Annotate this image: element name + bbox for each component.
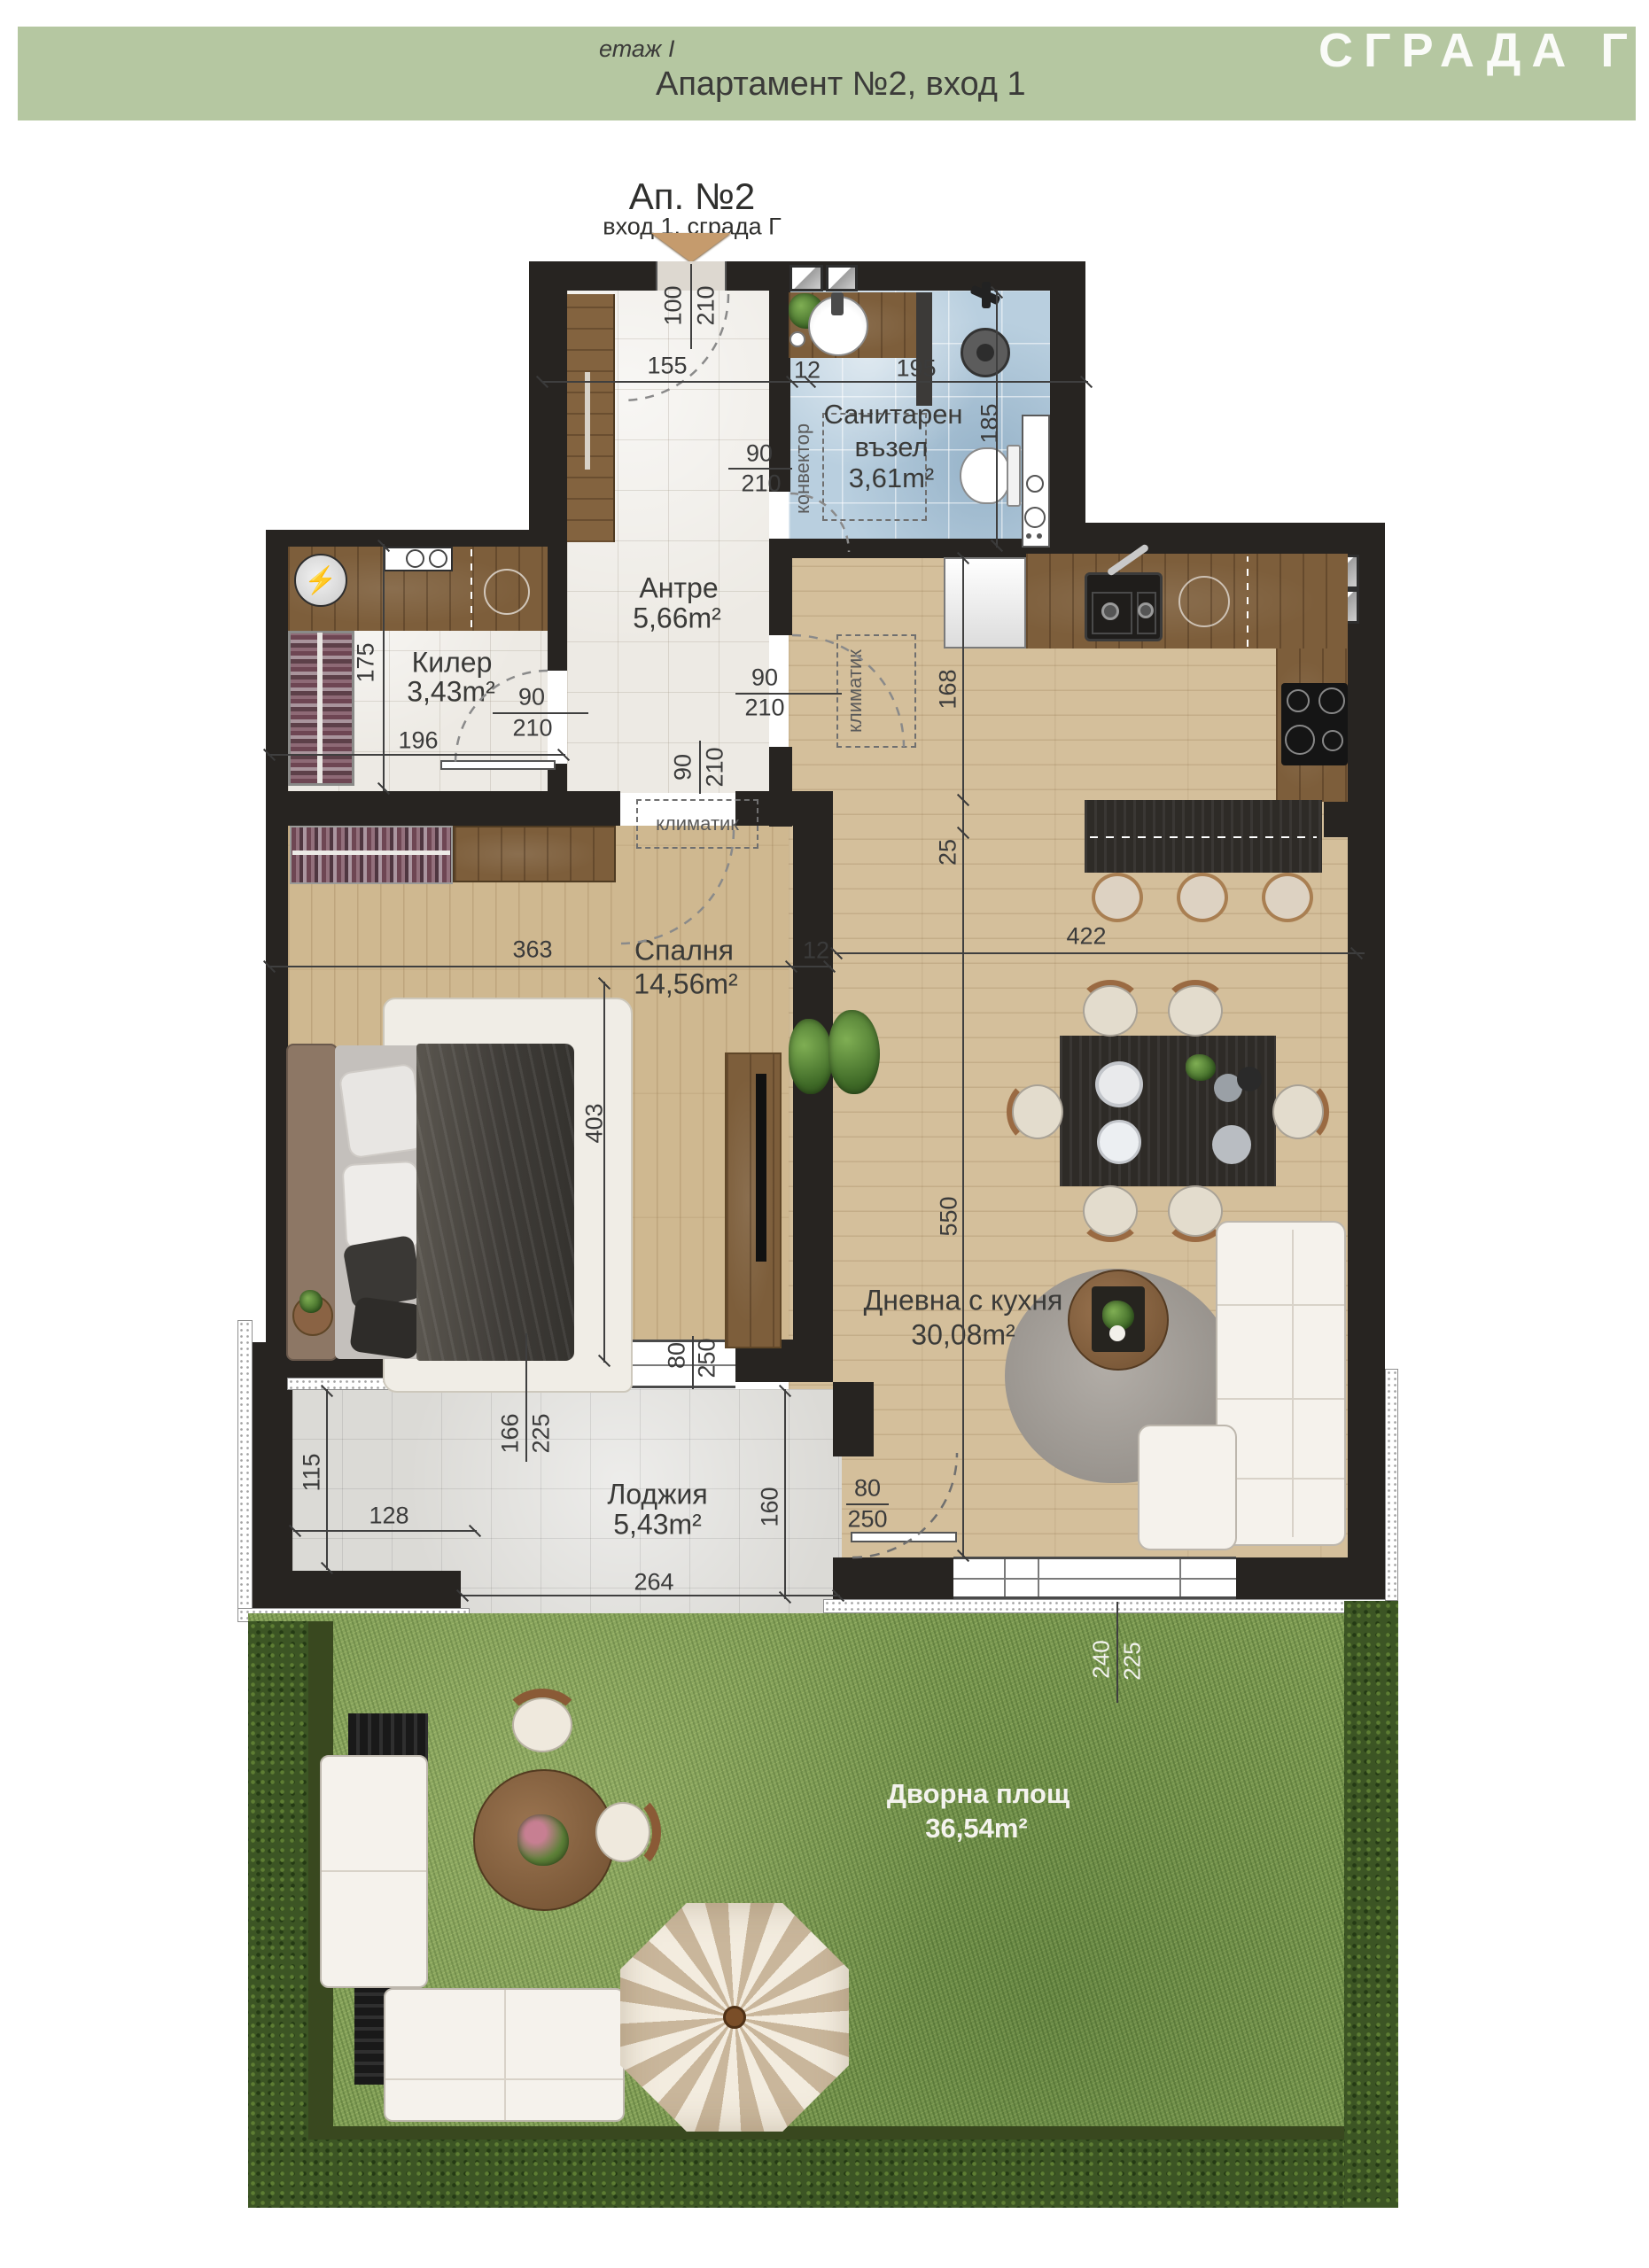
dining-chair-seat [1168, 985, 1223, 1037]
dim-label: 25 [935, 839, 962, 866]
sofa-cushion-line [1217, 1398, 1344, 1400]
burner-icon [1322, 730, 1343, 751]
bathroom-name: възел [855, 431, 929, 463]
ac-label: климатик [844, 649, 867, 733]
plant-icon [789, 1019, 833, 1094]
toilet [960, 447, 1011, 504]
entrance-arrow-icon [651, 233, 731, 262]
dim-label: 166 [497, 1413, 525, 1453]
storage-area: 3,43m² [407, 676, 495, 709]
dim-label: 155 [647, 353, 687, 380]
bathroom-area: 3,61m² [849, 462, 934, 494]
sofa-cushion-line [1217, 1304, 1344, 1306]
boiler-knob-icon [1026, 475, 1044, 493]
wall-segment [833, 1382, 874, 1456]
apartment-marker-title: Ап. №2 [629, 175, 756, 218]
dim-label: 225 [528, 1413, 556, 1453]
dining-chair-seat [1012, 1084, 1063, 1139]
wardrobe-rail [317, 633, 323, 783]
door-leaf [440, 760, 556, 770]
burner-icon [1318, 687, 1345, 714]
dining-chair-seat [1272, 1084, 1324, 1139]
wall-segment [1348, 523, 1385, 1599]
dimension-line [784, 1389, 786, 1599]
wall-segment [727, 261, 1085, 291]
bar-stool [1262, 873, 1313, 922]
dim-label: 210 [741, 470, 781, 498]
counter-circle-outline [1178, 576, 1230, 627]
bedroom-wardrobe-rail [292, 850, 450, 855]
wall-segment [548, 549, 567, 671]
dim-label: 264 [634, 1569, 673, 1596]
dim-label: 240 [1088, 1640, 1116, 1678]
wall-segment [793, 826, 833, 1382]
dim-label: 80 [664, 1342, 691, 1369]
dim-label: 210 [512, 715, 552, 742]
entry-name: Антре [639, 572, 718, 605]
insulation-hatch [237, 1320, 253, 1621]
hedge [1344, 1601, 1398, 2208]
dim-label: 225 [1119, 1642, 1147, 1680]
sofa-ottoman [1138, 1425, 1237, 1550]
bar-stool [1177, 873, 1228, 922]
burner-icon [1287, 689, 1310, 712]
dim-label: 128 [369, 1503, 408, 1530]
bathroom-window [826, 265, 858, 291]
hedge [248, 2140, 1398, 2208]
tv-screen [756, 1074, 766, 1262]
flower-bouquet-icon [517, 1814, 569, 1866]
wall-segment [1324, 796, 1350, 837]
dim-label: 185 [976, 403, 1004, 443]
insulation-hatch [1385, 1369, 1398, 1601]
plant-icon [299, 1290, 323, 1313]
window-mullion [1179, 1559, 1181, 1596]
washing-machine: ⚡ [294, 554, 347, 607]
counter-divider-line [471, 549, 472, 627]
shower-head-icon [982, 282, 991, 308]
wall-segment [529, 261, 567, 554]
dimension-line [268, 966, 831, 967]
dining-table [1060, 1036, 1276, 1186]
dim-label: 100 [660, 285, 688, 325]
dimension-line [293, 1530, 477, 1532]
shower-drain-icon [976, 344, 994, 361]
dim-label: 196 [398, 727, 438, 755]
dimension-line [962, 556, 964, 1557]
soap-cup-icon [789, 331, 805, 347]
outdoor-chair-seat [512, 1697, 572, 1752]
floor-plan-page: етаж I Апартамент №2, вход 1 СГРАДА Г Ап… [0, 0, 1649, 2268]
page-title: Апартамент №2, вход 1 [656, 66, 1026, 104]
dim-label: 90 [746, 440, 773, 468]
yard-name: Дворна площ [887, 1778, 1070, 1810]
bed-blanket [416, 1044, 574, 1361]
bedroom-wardrobe-clothes [290, 826, 453, 884]
wall-segment [1050, 261, 1085, 556]
wall-segment [833, 1557, 953, 1599]
wall-segment [1050, 523, 1385, 556]
wall-segment [266, 530, 288, 1382]
bed-pillow-dark [342, 1235, 423, 1310]
loggia-area: 5,43m² [613, 1509, 702, 1542]
dim-label: 250 [847, 1506, 887, 1534]
window-mullion [1038, 1559, 1039, 1596]
insulation-hatch [823, 1599, 1398, 1613]
dim-label: 12 [803, 937, 829, 965]
bathroom-window [789, 265, 823, 291]
dimension-line [603, 982, 605, 1363]
sink-drain-icon [1101, 602, 1119, 620]
plate [1095, 1061, 1143, 1107]
dim-label: 250 [694, 1338, 721, 1378]
dim-label: 195 [896, 355, 936, 383]
bar-dashed-line [1090, 836, 1317, 838]
wall-segment [1236, 1557, 1385, 1599]
counter-dashed-line [1247, 556, 1248, 647]
dining-chair-seat [1083, 985, 1138, 1037]
flower-icon [1109, 1325, 1125, 1341]
dim-label: 12 [794, 357, 821, 384]
sink-faucet-icon [831, 292, 844, 315]
window-frame-line [953, 1578, 1236, 1580]
bedroom-area: 14,56m² [634, 968, 737, 1001]
bathroom-name: Санитарен [823, 399, 962, 431]
utility-sink-bowl [429, 549, 447, 568]
dimension-line [326, 1389, 328, 1570]
outdoor-chair-seat [595, 1802, 650, 1862]
dim-label: 160 [757, 1487, 784, 1526]
bed-pillow [338, 1062, 426, 1159]
yard-area: 36,54m² [925, 1813, 1027, 1845]
sofa-cushion-line [504, 1990, 506, 2120]
boiler-knob-icon [1024, 507, 1046, 528]
boiler-dot-icon [1026, 533, 1031, 539]
plate [1212, 1125, 1251, 1164]
entry-wardrobe [567, 294, 615, 542]
door-leaf [851, 1532, 957, 1542]
bed-pillow [341, 1161, 422, 1251]
building-label: СГРАДА Г [1318, 23, 1638, 78]
outdoor-sofa-cushions [320, 1755, 428, 1988]
floor-label: етаж I [599, 35, 675, 63]
utility-sink-bowl [406, 549, 424, 568]
dim-label: 90 [518, 684, 545, 711]
living-yard-window [953, 1557, 1236, 1599]
dim-label: 210 [702, 747, 729, 787]
plate [1097, 1120, 1141, 1164]
bowl-dark [1237, 1067, 1262, 1091]
dim-label: 90 [670, 754, 697, 781]
wall-segment [266, 791, 620, 826]
sofa-back-line [1292, 1230, 1294, 1537]
umbrella-pole-icon [723, 2006, 746, 2029]
dim-label: 422 [1066, 923, 1106, 951]
window-mullion [1004, 1559, 1006, 1596]
fridge [944, 557, 1026, 649]
dim-label: 403 [581, 1103, 609, 1143]
dim-label: 115 [299, 1453, 326, 1491]
dim-label: 363 [512, 936, 552, 964]
dim-label: 80 [854, 1475, 881, 1503]
plant-icon [828, 1010, 880, 1094]
ac-label: климатик [656, 812, 739, 835]
storage-name: Килер [412, 647, 493, 680]
wall-segment [253, 1571, 461, 1608]
hedge [248, 1621, 308, 2208]
counter-circle-outline [484, 569, 530, 615]
entry-area: 5,66m² [633, 602, 721, 635]
boiler-dot-icon [1037, 533, 1042, 539]
dim-label: 90 [751, 664, 778, 692]
wall-segment [769, 554, 792, 635]
plant-icon [1186, 1054, 1216, 1081]
dining-chair-seat [1168, 1185, 1223, 1237]
sofa-cushion-line [385, 2078, 623, 2080]
wardrobe-handle [585, 372, 590, 470]
dim-label: 550 [936, 1196, 963, 1236]
bar-stool [1092, 873, 1143, 922]
toilet-tank [1007, 445, 1021, 507]
burner-icon [1285, 725, 1315, 755]
dimension-line [835, 952, 1365, 954]
loggia-name: Лоджия [607, 1479, 707, 1511]
dim-label: 168 [935, 669, 962, 709]
convector-label: конвектор [791, 423, 814, 514]
dim-label: 175 [353, 642, 380, 682]
sofa-cushion-line [322, 1870, 426, 1872]
tv-console [725, 1052, 782, 1348]
bedroom-name: Спалня [634, 935, 734, 967]
bed-pillow-dark [349, 1296, 424, 1360]
outdoor-sofa-cushions [384, 1988, 625, 2122]
bedroom-wardrobe-wood [453, 826, 616, 882]
shower-partition [916, 292, 932, 406]
sink-drain-icon [1138, 602, 1154, 618]
dim-label: 210 [693, 285, 720, 325]
dining-chair-seat [1083, 1185, 1138, 1237]
washer-lightning-icon: ⚡ [304, 566, 337, 595]
dim-label: 210 [744, 695, 784, 722]
